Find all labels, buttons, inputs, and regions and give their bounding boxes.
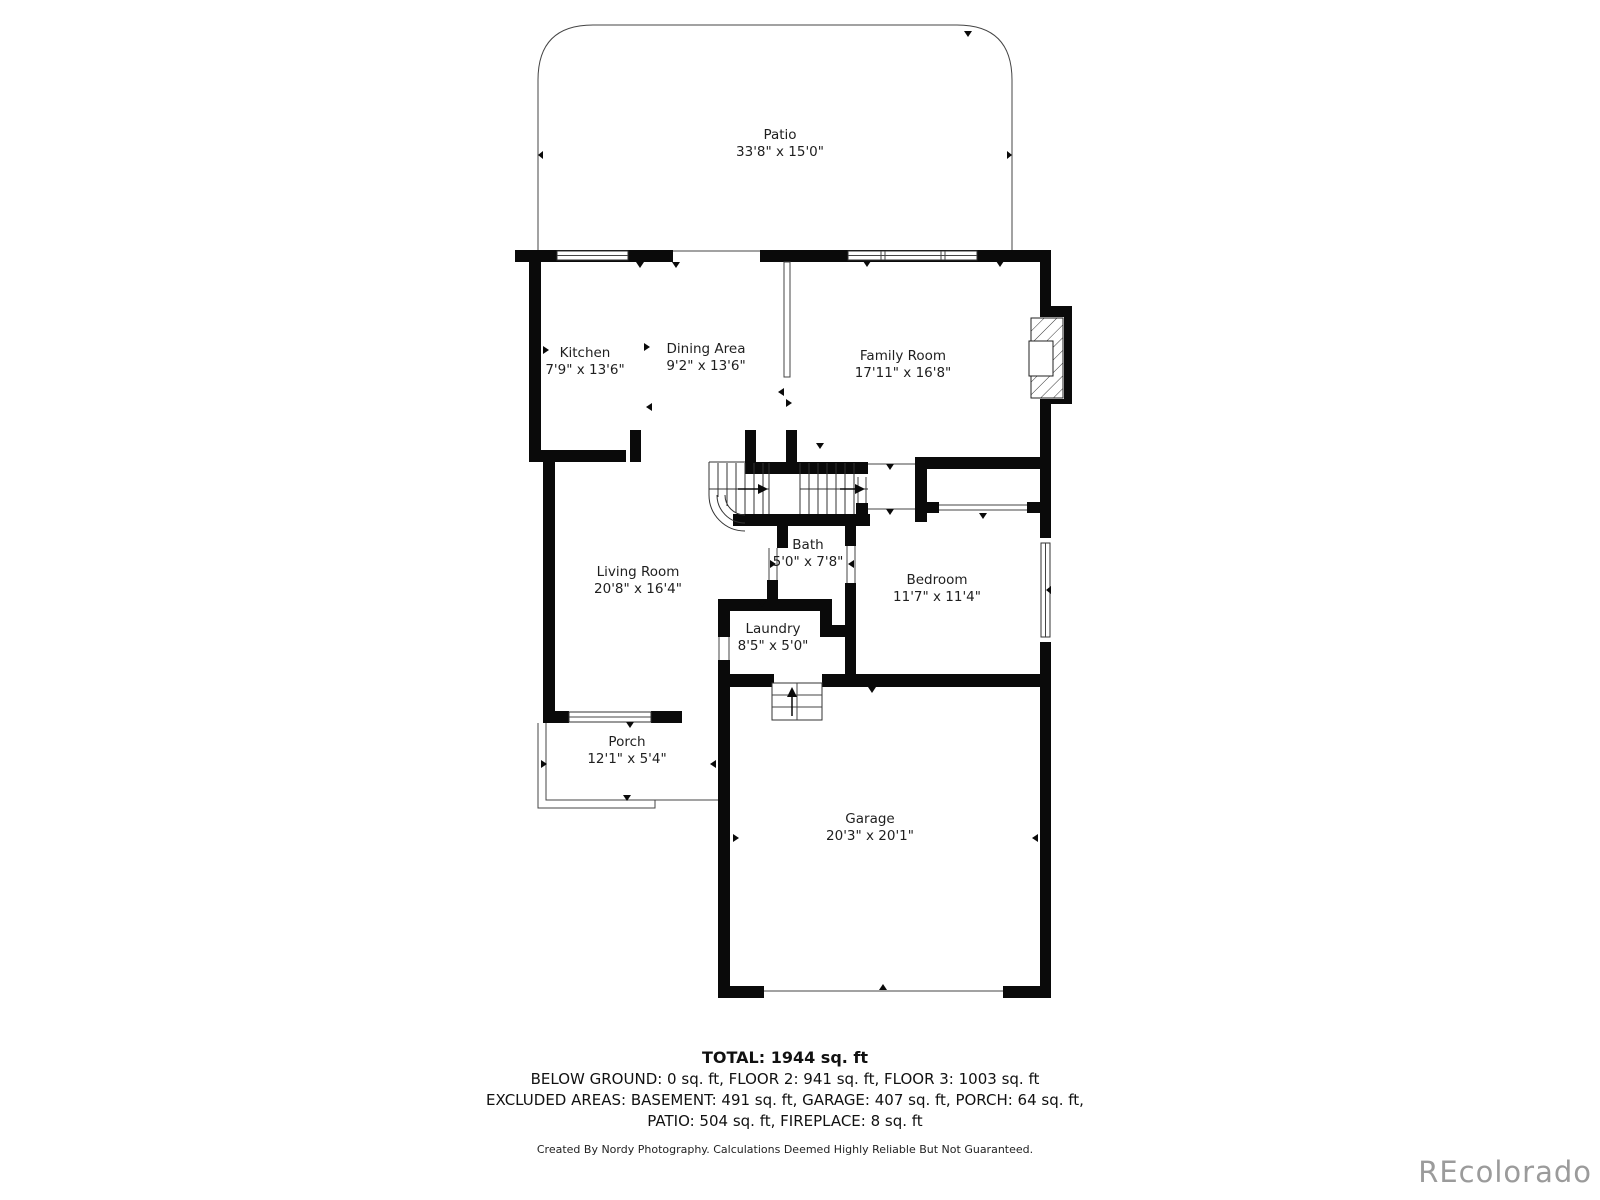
room-label-kitchen-dims: 7'9" x 13'6" [545,362,624,378]
floors-line: BELOW GROUND: 0 sq. ft, FLOOR 2: 941 sq.… [0,1070,1570,1088]
room-label-dining-dims: 9'2" x 13'6" [666,358,745,374]
excluded-areas-line: EXCLUDED AREAS: BASEMENT: 491 sq. ft, GA… [0,1091,1570,1109]
fireplace [1029,317,1064,399]
room-label-patio-dims: 33'8" x 15'0" [736,144,824,160]
room-label-porch-name: Porch [608,734,645,750]
room-label-garage-name: Garage [845,811,894,827]
floor-plan-page: Patio 33'8" x 15'0" Kitchen 7'9" x 13'6"… [0,0,1600,1200]
floor-plan-canvas: Patio 33'8" x 15'0" Kitchen 7'9" x 13'6"… [0,0,1600,1200]
room-label-family-dims: 17'11" x 16'8" [855,365,952,381]
room-label-bath-name: Bath [792,537,823,553]
room-label-dining-name: Dining Area [667,341,746,357]
garage-steps [772,683,822,720]
recolorado-watermark: REcolorado [1418,1155,1592,1189]
room-label-family-name: Family Room [860,348,946,364]
area-summary: TOTAL: 1944 sq. ft BELOW GROUND: 0 sq. f… [0,1048,1570,1156]
room-label-bedroom-dims: 11'7" x 11'4" [893,589,981,605]
total-area: TOTAL: 1944 sq. ft [0,1048,1570,1067]
room-label-living-name: Living Room [597,564,680,580]
room-label-garage-dims: 20'3" x 20'1" [826,828,914,844]
room-label-kitchen-name: Kitchen [560,345,611,361]
excluded-areas-line2: PATIO: 504 sq. ft, FIREPLACE: 8 sq. ft [0,1112,1570,1130]
windows [557,250,1053,991]
credit-line: Created By Nordy Photography. Calculatio… [0,1143,1570,1156]
room-label-living-dims: 20'8" x 16'4" [594,581,682,597]
room-label-bath-dims: 5'0" x 7'8" [773,554,844,570]
room-label-laundry-dims: 8'5" x 5'0" [738,638,809,654]
room-label-patio-name: Patio [763,127,796,143]
room-label-laundry-name: Laundry [745,621,800,637]
room-label-bedroom-name: Bedroom [906,572,967,588]
room-label-porch-dims: 12'1" x 5'4" [587,751,666,767]
